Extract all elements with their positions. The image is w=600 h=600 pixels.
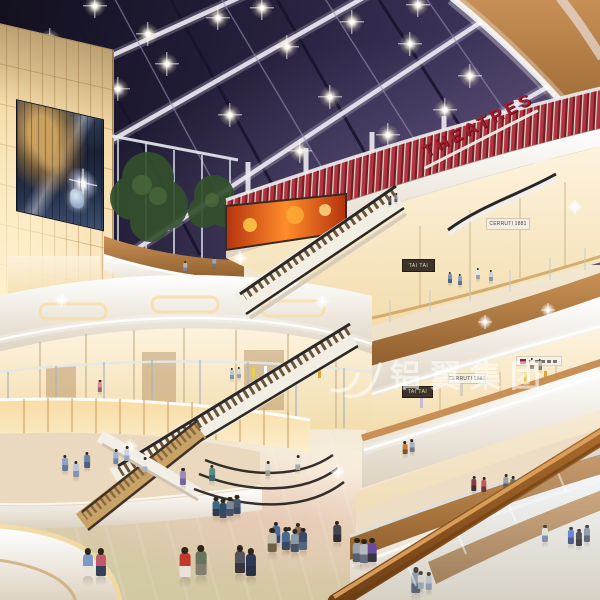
watermark-text: 铝翼集团 xyxy=(390,351,550,396)
watermark-swoosh-icon xyxy=(322,346,386,400)
watermark: 铝翼集团 xyxy=(322,346,550,400)
foreground-handrail xyxy=(0,0,600,600)
mall-atrium-scene: THEATRES TAI TAI CERRUTI 1881 TAI TAI CE… xyxy=(0,0,600,600)
